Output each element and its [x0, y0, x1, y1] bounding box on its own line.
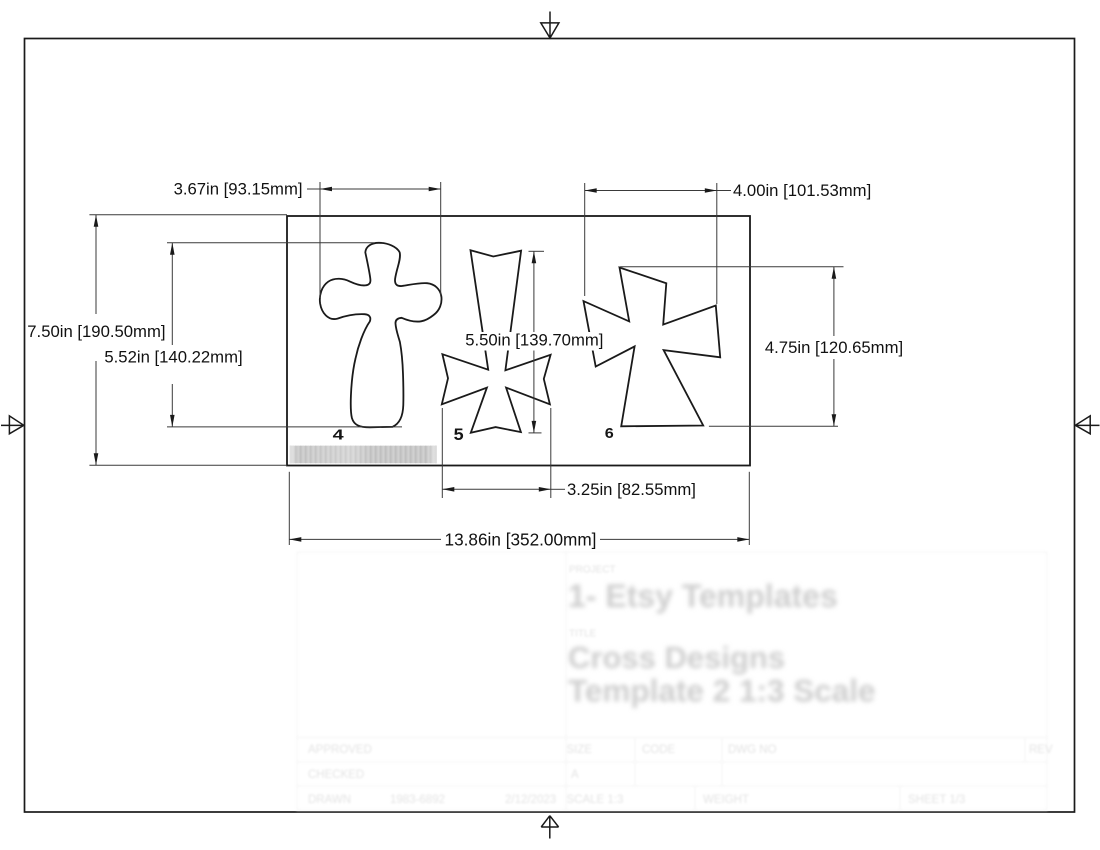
svg-text:7.50in [190.50mm]: 7.50in [190.50mm] — [27, 322, 165, 341]
svg-text:DRAWN: DRAWN — [308, 794, 351, 806]
svg-text:6: 6 — [605, 425, 614, 442]
svg-text:4: 4 — [333, 428, 345, 444]
svg-text:Cross Designs: Cross Designs — [568, 640, 785, 675]
svg-text:WEIGHT: WEIGHT — [703, 794, 749, 806]
svg-text:13.86in [352.00mm]: 13.86in [352.00mm] — [445, 530, 597, 550]
svg-text:5.50in [139.70mm]: 5.50in [139.70mm] — [465, 330, 603, 349]
svg-text:PROJECT: PROJECT — [569, 565, 616, 576]
svg-text:5.52in [140.22mm]: 5.52in [140.22mm] — [104, 348, 242, 367]
svg-text:SIZE: SIZE — [567, 744, 593, 756]
svg-text:1- Etsy Templates: 1- Etsy Templates — [568, 578, 838, 614]
svg-text:REV: REV — [1029, 744, 1053, 756]
svg-text:SHEET 1/3: SHEET 1/3 — [908, 794, 965, 806]
svg-text:3.25in [82.55mm]: 3.25in [82.55mm] — [567, 480, 696, 499]
svg-text:TITLE: TITLE — [569, 629, 597, 640]
svg-text:APPROVED: APPROVED — [308, 744, 372, 756]
svg-text:CHECKED: CHECKED — [308, 769, 364, 781]
svg-text:4.75in [120.65mm]: 4.75in [120.65mm] — [765, 338, 903, 357]
svg-text:DWG NO: DWG NO — [728, 744, 777, 756]
svg-text:Template 2 1:3 Scale: Template 2 1:3 Scale — [568, 673, 876, 709]
svg-text:2/12/2023: 2/12/2023 — [505, 794, 556, 806]
svg-text:SCALE 1:3: SCALE 1:3 — [567, 794, 624, 806]
svg-text:1983-6892: 1983-6892 — [390, 794, 445, 806]
svg-text:3.67in [93.15mm]: 3.67in [93.15mm] — [174, 180, 303, 199]
svg-text:4.00in [101.53mm]: 4.00in [101.53mm] — [733, 181, 871, 200]
svg-text:5: 5 — [454, 425, 464, 444]
svg-text:A: A — [571, 769, 579, 781]
svg-text:CODE: CODE — [642, 744, 676, 756]
